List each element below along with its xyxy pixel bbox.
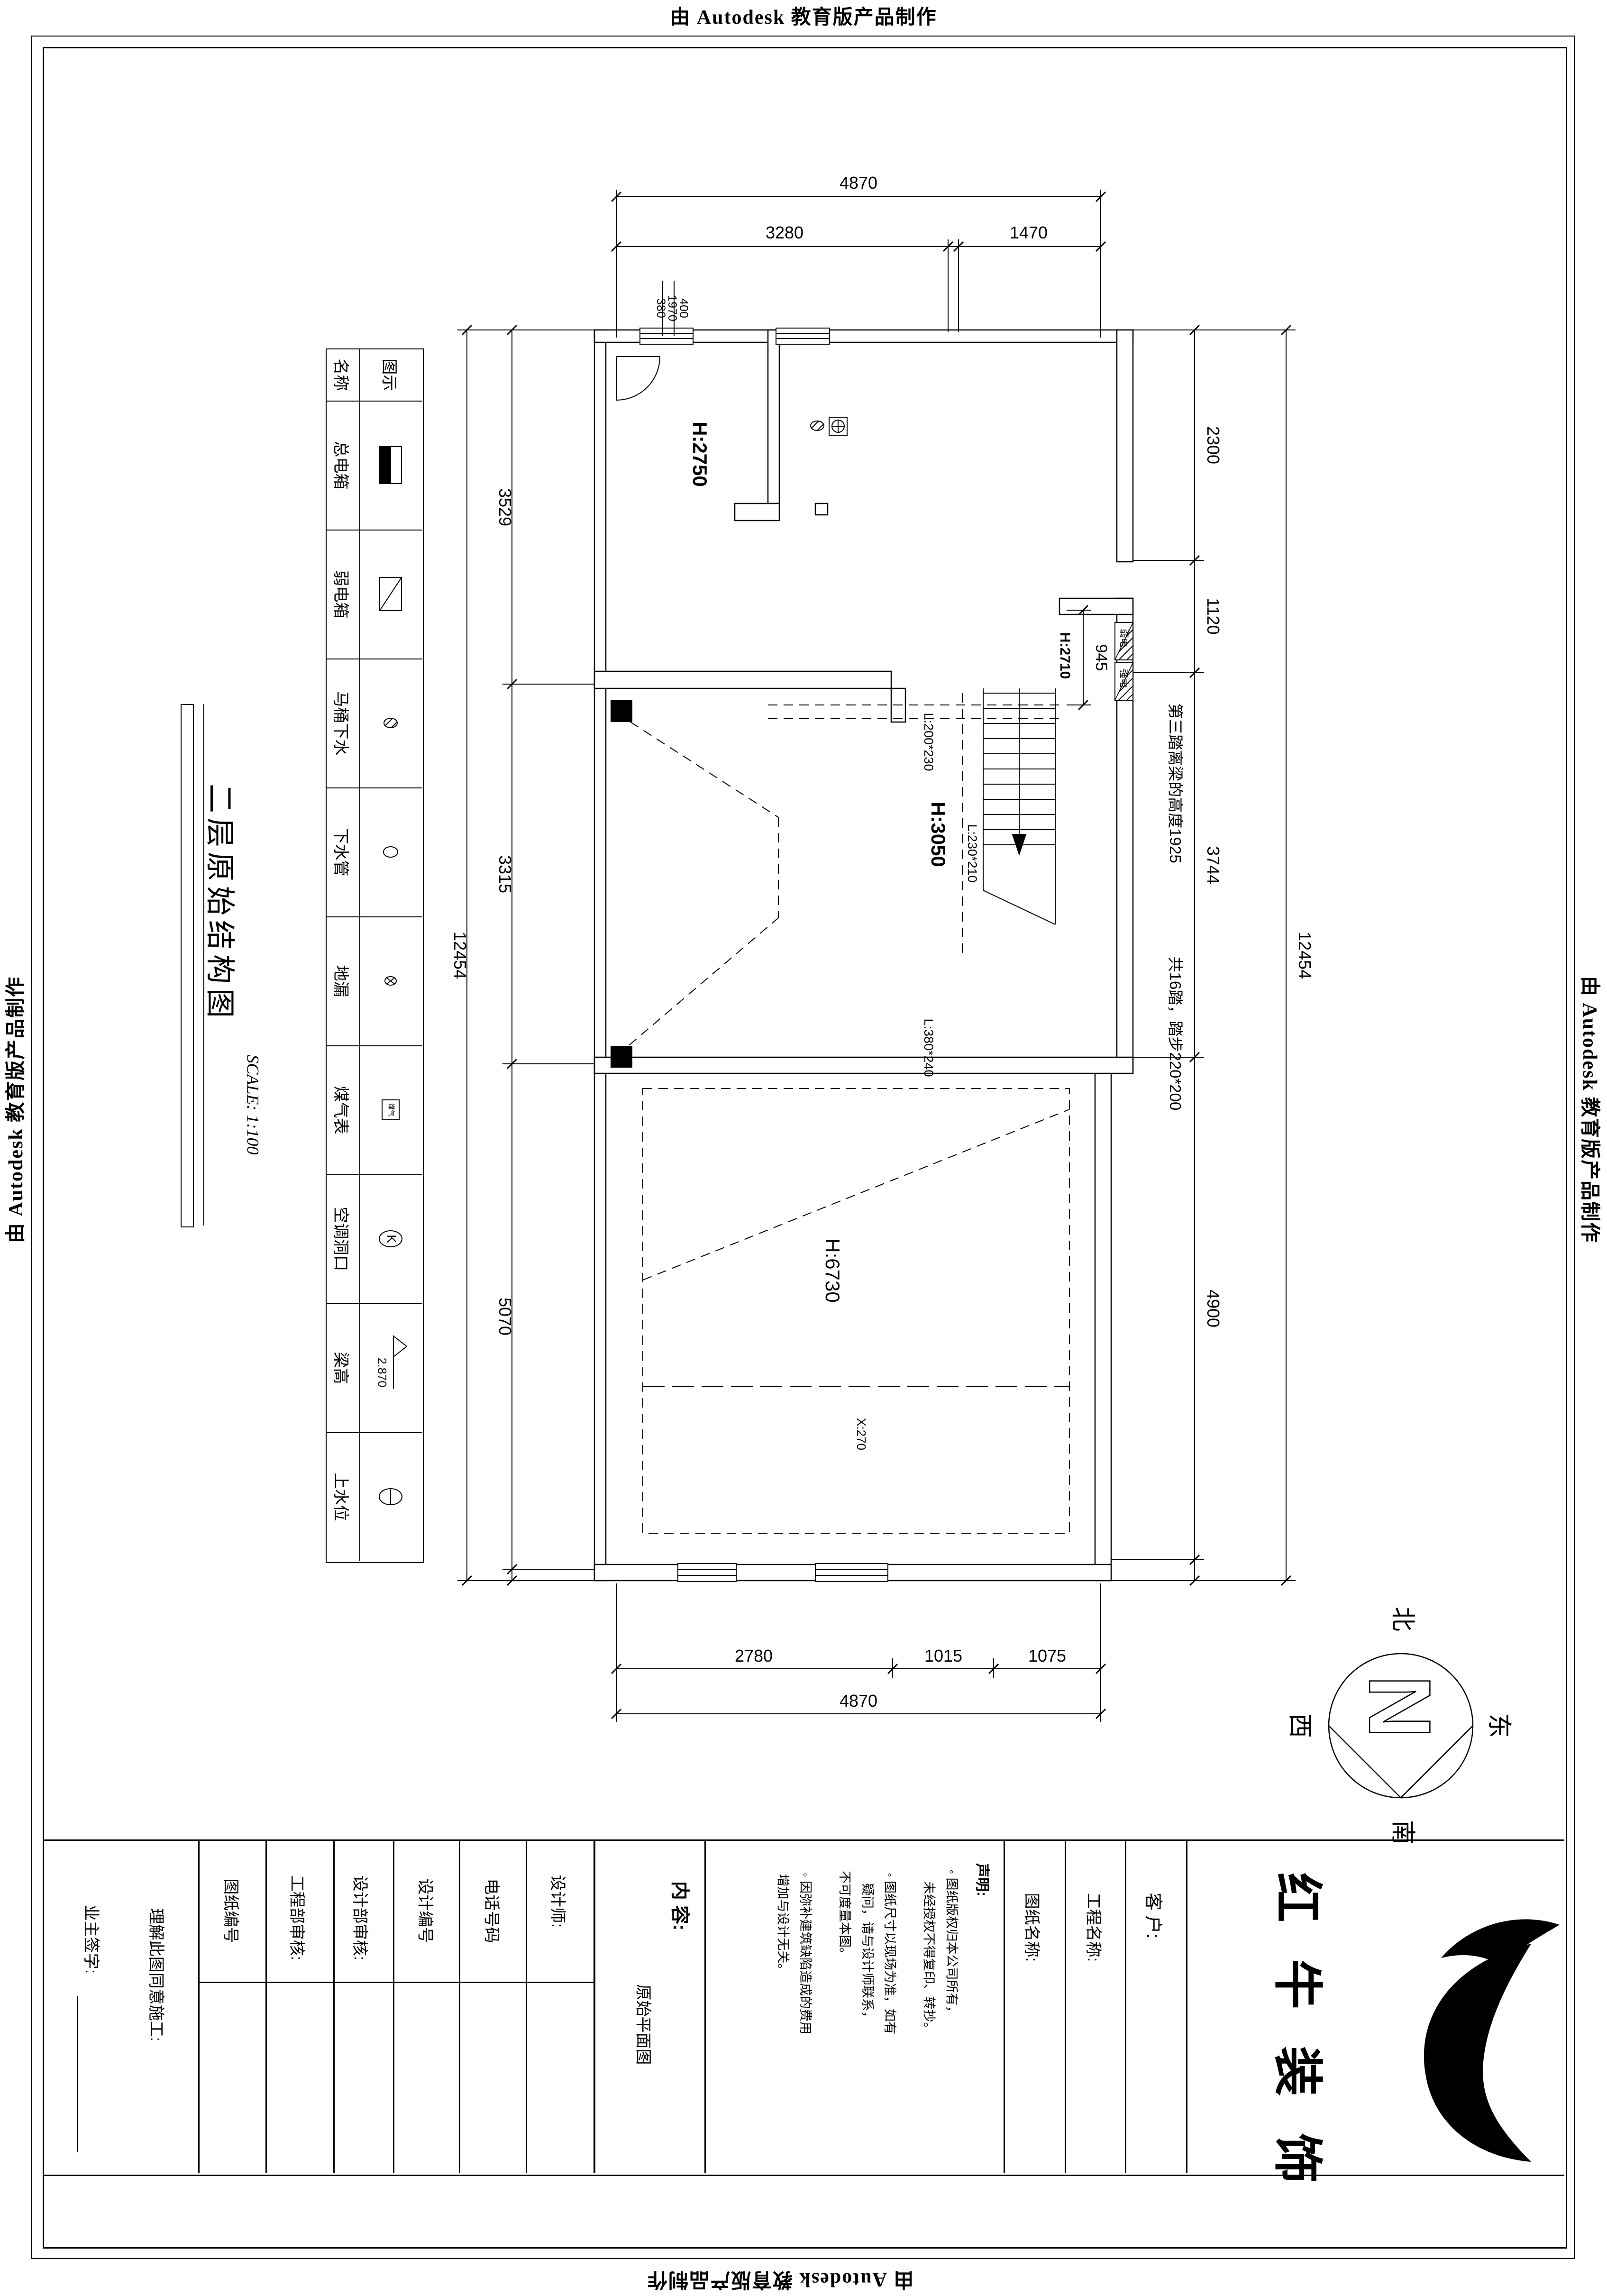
- dim-small-b: 1970: [666, 295, 679, 321]
- weak-electric-label: 弱电: [1118, 629, 1129, 648]
- drain-pipe-icon: [383, 847, 398, 857]
- titleblock-divider: [333, 1839, 335, 2173]
- gas-meter-text: 煤气: [387, 1103, 395, 1116]
- titleblock-divider: [1125, 1839, 1126, 2173]
- room-label-h2750: H:2750: [689, 421, 711, 487]
- main-electric-box-icon: [380, 447, 402, 484]
- dim-945: 945: [1092, 644, 1110, 671]
- wall-mid-upper: [594, 671, 891, 688]
- wall-mid-lower: [594, 1057, 1133, 1073]
- drawing-sheet: 由 Autodesk 教育版产品制作 由 Autodesk 教育版产品制作 由 …: [0, 0, 1607, 2296]
- void-edge-a: [617, 713, 778, 817]
- dim-right-c: 3744: [1204, 846, 1223, 884]
- gas-meter-icon: 煤气: [382, 1100, 399, 1120]
- titleblock-divider: [1186, 1839, 1187, 2173]
- door-swing: [616, 357, 660, 400]
- void-edge-b: [617, 918, 778, 1055]
- dim-bottom-a: 2780: [735, 1646, 773, 1665]
- window-bottom-a: [678, 1564, 736, 1582]
- legend-symbols: 煤气 K 2.870: [375, 447, 407, 1505]
- titleblock-divider: [393, 1839, 394, 2173]
- dim-bottom-b: 1015: [924, 1646, 962, 1665]
- strong-electric-label: 强电: [1118, 669, 1129, 688]
- dimension-ticks: [462, 192, 1291, 1719]
- titleblock-divider: [593, 1839, 595, 2173]
- weak-electric-box-legend-icon: [380, 577, 402, 611]
- dim-left-a: 3529: [495, 488, 515, 526]
- void-diagonal: [643, 1109, 1069, 1280]
- titleblock-divider: [526, 1839, 527, 2173]
- room-label-h6730: H:6730: [822, 1238, 844, 1302]
- stair-winder-line: [983, 890, 1055, 924]
- wall-right-upper: [1117, 330, 1133, 562]
- compass-n-icon: N: [1351, 1675, 1448, 1738]
- compass: N: [1329, 1654, 1473, 1798]
- compass-east: 东: [1485, 1713, 1512, 1738]
- window-top-a: [640, 328, 693, 344]
- dim-right-b: 1120: [1204, 598, 1223, 634]
- room-label-h2710: H:2710: [1057, 632, 1073, 679]
- dim-left-total: 12454: [450, 932, 470, 979]
- beam-label-2: L:230*210: [965, 824, 979, 882]
- beam-height-text: 2.870: [375, 1358, 388, 1388]
- titleblock-divider: [1004, 1839, 1005, 2173]
- wall-right-lower: [1095, 1073, 1111, 1581]
- dim-right-a: 2300: [1204, 426, 1223, 464]
- toilet-drain-icon: [811, 421, 824, 430]
- titleblock-divider: [265, 1839, 267, 2173]
- dim-small-a: 380: [654, 298, 667, 318]
- dim-left-c: 5070: [495, 1298, 515, 1336]
- beam-label-1: L:200*230: [922, 713, 936, 771]
- compass-north: 北: [1388, 1607, 1416, 1631]
- titleblock-divider: [198, 1839, 200, 2173]
- dim-top-b: 1470: [1010, 223, 1048, 242]
- floor-drain-icon: [385, 977, 396, 985]
- titleblock-divider: [704, 1839, 706, 2173]
- titleblock-divider: [1065, 1839, 1066, 2173]
- column-b: [611, 1046, 632, 1068]
- room-label-x270: X:270: [854, 1418, 868, 1450]
- dim-top-overall: 4870: [840, 173, 877, 192]
- dim-right-d: 4900: [1204, 1290, 1223, 1327]
- weak-electric-box-icon: 弱电: [1115, 622, 1133, 660]
- water-level-box-icon: [829, 417, 847, 435]
- owner-signature-line: [77, 1996, 78, 2152]
- compass-west: 西: [1286, 1713, 1313, 1738]
- wall-entry-stub: [1059, 598, 1133, 614]
- dim-small-c: 400: [677, 298, 690, 318]
- dim-bottom-overall: 4870: [840, 1691, 877, 1711]
- ac-opening-icon: K: [379, 1231, 402, 1247]
- walls: [594, 330, 1133, 1581]
- stair-note-1: 第三踏离梁的高度1925: [1167, 703, 1184, 863]
- water-supply-level-icon: [379, 1489, 402, 1505]
- strong-electric-box-icon: 强电: [1115, 663, 1133, 700]
- ac-opening-text: K: [384, 1235, 399, 1243]
- wall-left: [594, 330, 606, 1581]
- titleblock-row-split: [198, 1982, 595, 1983]
- dashed-lines: [617, 693, 1069, 1533]
- dim-left-b: 3315: [495, 855, 515, 893]
- wall-inner: [768, 330, 779, 503]
- dim-top-a: 3280: [766, 223, 803, 242]
- beam-label-3: L:380*240: [922, 1018, 936, 1077]
- dim-bottom-c: 1075: [1028, 1646, 1066, 1665]
- window-top-b: [776, 328, 830, 344]
- column-a: [611, 700, 632, 722]
- dimension-texts: 4870 3280 1470 380 1970 400 2780 1015 10…: [450, 173, 1315, 1711]
- wall-stub-b: [815, 503, 828, 515]
- beam-height-icon: 2.870: [375, 1336, 407, 1389]
- window-bottom-b: [815, 1564, 888, 1582]
- stair-note-2: 共16踏，踏步220*200: [1167, 957, 1184, 1111]
- wall-stub-a: [735, 503, 779, 521]
- staircase: [983, 688, 1055, 924]
- toilet-drain-legend-icon: [384, 718, 397, 728]
- room-label-h3050: H:3050: [927, 802, 950, 867]
- dim-right-total: 12454: [1295, 932, 1315, 979]
- void-outline-lower: [643, 1089, 1069, 1533]
- dimension-lines: [457, 190, 1296, 1722]
- titleblock-divider: [459, 1839, 460, 2173]
